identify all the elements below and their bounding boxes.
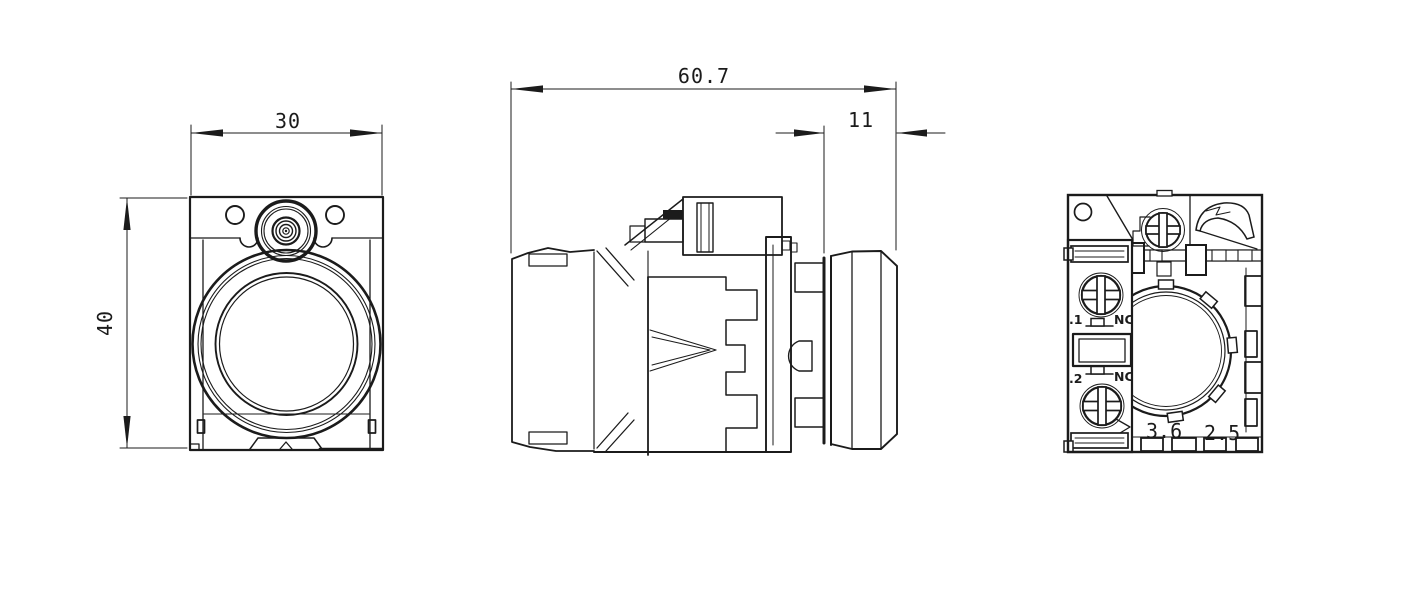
- marking-right: 2.5: [1204, 421, 1240, 445]
- drawing-svg: 30 40: [0, 0, 1410, 612]
- rear-corner-chamfer: [1107, 196, 1133, 240]
- rear-corner-hole: [1075, 204, 1092, 221]
- side-button-cap: [824, 251, 897, 449]
- terminal-1-contact-label: NC: [1114, 312, 1134, 327]
- dimension-cap-depth-value: 11: [848, 108, 874, 132]
- button-rings: [193, 250, 381, 438]
- terminal-2-label: .2: [1069, 371, 1082, 386]
- front-view-body: [190, 197, 383, 450]
- terminal-screw-1: [1079, 273, 1123, 317]
- front-view: 30 40: [93, 109, 383, 450]
- mounting-hole-right: [326, 206, 344, 224]
- marking-left: 3.6: [1146, 419, 1182, 443]
- dimension-height-value: 40: [93, 310, 117, 336]
- terminal-1-label: .1: [1069, 312, 1082, 327]
- side-view: 60.7 11: [511, 64, 945, 455]
- technical-drawing: 30 40: [0, 0, 1410, 612]
- rear-view: .1 NC .2 NC: [1064, 191, 1262, 453]
- side-holder: [594, 197, 790, 455]
- dimension-width-value: 30: [275, 109, 301, 133]
- mounting-hole-left: [226, 206, 244, 224]
- side-flange: [766, 237, 824, 452]
- dimension-overall-depth-value: 60.7: [678, 64, 730, 88]
- dimension-height: 40: [93, 198, 187, 448]
- dimension-cap-depth: 11: [776, 108, 945, 253]
- release-lever: [1196, 203, 1257, 249]
- dimension-width: 30: [191, 109, 382, 195]
- side-contact-block: [512, 248, 634, 451]
- rear-bottom: 3.6 2.5: [1132, 419, 1262, 451]
- rear-right-latches: [1245, 268, 1262, 432]
- terminal-column: .1 NC .2 NC: [1064, 240, 1134, 452]
- mounting-rail: [1127, 243, 1262, 276]
- terminal-2-contact-label: NC: [1114, 369, 1134, 384]
- dimension-overall-depth: 60.7: [511, 64, 896, 253]
